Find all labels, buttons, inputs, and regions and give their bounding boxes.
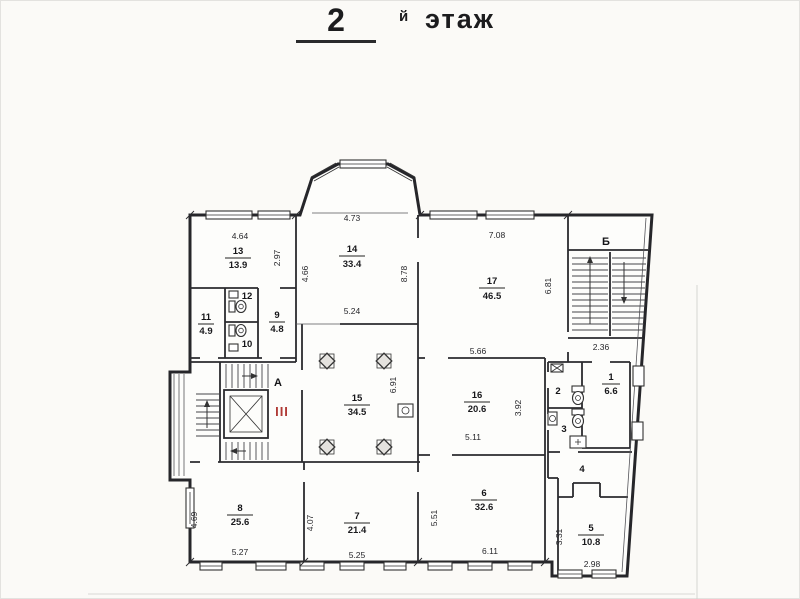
dim-r8-left: 4.69 xyxy=(189,511,199,528)
dim-r6-bottom: 6.11 xyxy=(482,546,498,556)
room-label-12: 12 xyxy=(242,291,253,302)
sink-icon xyxy=(229,344,238,351)
walls-outer xyxy=(170,164,652,576)
shower-tray-icon xyxy=(570,436,586,448)
room-number: 14 xyxy=(347,244,358,255)
room-area: 33.4 xyxy=(343,259,362,270)
room-number: 5 xyxy=(588,523,594,534)
room-number: 16 xyxy=(472,390,483,401)
room-label-10: 10 xyxy=(242,339,253,350)
dim-r17-top: 7.08 xyxy=(489,230,506,240)
room-area: 4.8 xyxy=(270,324,283,335)
dim-r17-bottom: 5.66 xyxy=(470,346,487,356)
dim-r17-right: 6.81 xyxy=(543,277,553,294)
washbasin-icon xyxy=(548,412,557,425)
dim-r16-bottom: 5.11 xyxy=(465,432,481,442)
toilet-icon xyxy=(229,325,246,337)
dim-r15-right: 6.91 xyxy=(388,376,398,393)
dim-r6-left: 5.51 xyxy=(429,509,439,526)
room-area: 20.6 xyxy=(468,404,487,415)
room-label-4: 4 xyxy=(579,464,585,475)
sink-icon xyxy=(551,364,563,372)
room-area: 46.5 xyxy=(483,291,502,302)
room-area: 32.6 xyxy=(475,502,494,513)
toilet-icon xyxy=(572,386,584,405)
room-label-3: 3 xyxy=(561,424,566,435)
room-label-2: 2 xyxy=(555,386,560,397)
dim-r14-top: 4.73 xyxy=(344,213,361,223)
dim-r14-left: 4.66 xyxy=(300,265,310,282)
room-area: 13.9 xyxy=(229,260,248,271)
dim-r13-right: 2.97 xyxy=(272,249,282,266)
toilet-icon xyxy=(229,301,246,313)
dim-r7-bottom: 5.25 xyxy=(349,550,366,560)
room-area: 10.8 xyxy=(582,537,601,548)
room-number: 2 xyxy=(555,386,560,397)
room-area: 34.5 xyxy=(348,407,367,418)
room-number: 10 xyxy=(242,339,253,350)
wall-niche xyxy=(633,366,644,386)
dim-stair-b-landing: 2.36 xyxy=(593,342,610,352)
room-number: 9 xyxy=(274,310,279,321)
room-area: 6.6 xyxy=(604,386,617,397)
wall-cabinet-icon xyxy=(398,404,413,417)
floorplan-svg: 13 13.9 14 33.4 17 46.5 11 4.9 12 10 xyxy=(0,0,800,599)
stairwell-b-letter: Б xyxy=(602,236,610,248)
red-hatch-mark: III xyxy=(275,404,289,419)
toilet-icon xyxy=(572,409,584,428)
room-area: 25.6 xyxy=(231,517,250,528)
room-area: 21.4 xyxy=(348,525,367,536)
wall-niche xyxy=(632,422,643,440)
room-number: 3 xyxy=(561,424,566,435)
dim-r7-left: 4.07 xyxy=(305,514,315,531)
dim-r5-left: 3.31 xyxy=(554,528,564,545)
dim-r5-bottom: 2.98 xyxy=(584,559,601,569)
room-number: 13 xyxy=(233,246,244,257)
dim-r8-bottom: 5.27 xyxy=(232,547,249,557)
room-number: 17 xyxy=(487,276,498,287)
room-number: 8 xyxy=(237,503,242,514)
room-number: 6 xyxy=(481,488,486,499)
room-number: 11 xyxy=(201,312,212,323)
room-number: 12 xyxy=(242,291,253,302)
stairwell-a-letter: А xyxy=(274,377,282,389)
room-number: 7 xyxy=(354,511,359,522)
room-area: 4.9 xyxy=(199,326,212,337)
dim-r14-bottom: 5.24 xyxy=(344,306,361,316)
dim-r16-right: 3.92 xyxy=(513,399,523,416)
room-number: 1 xyxy=(608,372,614,383)
dim-r13-top: 4.64 xyxy=(232,231,249,241)
room-number: 4 xyxy=(579,464,585,475)
dim-r14-right: 8.78 xyxy=(399,265,409,282)
sink-icon xyxy=(229,291,238,298)
room-number: 15 xyxy=(352,393,363,404)
scan-page: 2 й этаж xyxy=(0,0,800,599)
